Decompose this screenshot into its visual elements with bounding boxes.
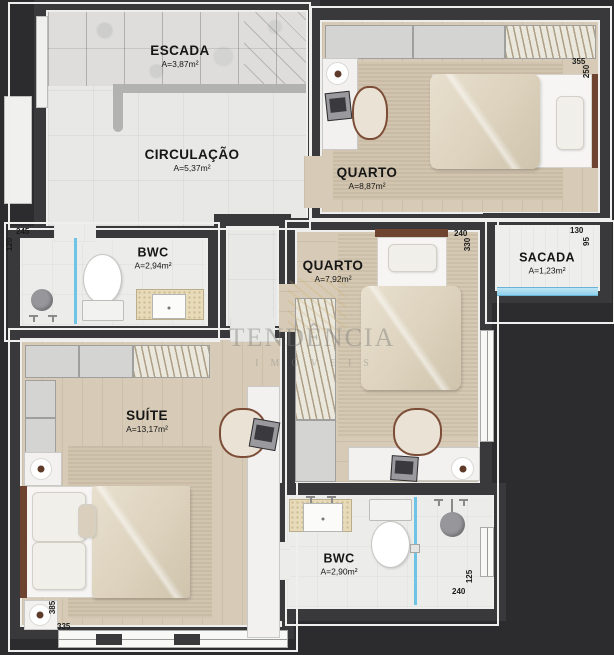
vanity-sink [303,503,343,532]
desk-chair [352,86,388,140]
room-area: A=8,87m² [337,181,398,191]
room-area: A=1,23m² [519,265,575,275]
faucet-icon [459,499,468,501]
balcony-glass-rail [497,287,598,296]
laptop-icon [390,455,419,482]
door-suite [230,318,275,342]
wardrobe-cabinet [79,345,133,378]
room-area: A=2,94m² [134,260,171,270]
faucet-icon [48,315,57,317]
bed-headboard [592,74,598,168]
room-area: A=7,92m² [303,274,364,284]
window-quarto-mid [480,330,494,442]
room-name: CIRCULAÇÃO [145,147,240,163]
room-label-quarto-top: QUARTO A=8,87m² [337,165,398,191]
wardrobe-cabinet [325,25,413,59]
vanity-sink [152,294,186,319]
shower-divider-top [74,238,77,324]
laptop-icon [249,418,281,451]
wardrobe-cabinet [25,418,56,454]
shower-door-handle [410,544,420,553]
bed-pillow [388,244,437,272]
exterior-ledge-left [4,96,32,204]
bed-duvet [92,486,190,598]
room-name: SUÍTE [126,408,168,424]
dim-bwc-bottom-height: 125 [465,570,474,583]
wardrobe-cabinet [25,345,79,378]
shower-head-icon [440,512,465,537]
room-name: BWC [134,245,171,260]
stair-landing-edge [113,84,306,93]
laptop-icon [325,91,353,121]
room-label-circulacao: CIRCULAÇÃO A=5,37m² [145,147,240,173]
wardrobe-cabinet [25,380,56,418]
dim-suite-width: 335 [57,622,70,631]
exterior-ledge-stairs [36,16,48,108]
wardrobe-cabinet [295,420,336,482]
room-area: A=2,90m² [320,566,357,576]
shower-arm [451,499,453,512]
bed-pillow [32,542,86,590]
dim-suite-height: 385 [48,601,57,614]
faucet-icon [29,315,38,317]
room-corridor [228,228,277,325]
window-pier-2 [174,634,200,645]
toilet-bowl [83,254,122,304]
dim-bwc-bottom-width: 240 [452,587,465,596]
lamp-icon [31,459,51,479]
bed-duvet [361,286,461,390]
dim-bwc-top-width: 245 [16,227,29,236]
lamp-icon [327,63,348,84]
stair-landing-edge-leg [113,84,123,132]
shower-head-icon [31,289,53,311]
dim-quarto-mid-height: 330 [463,238,472,251]
desk-chair [393,408,442,456]
room-name: ESCADA [150,43,209,59]
wardrobe-cabinet [413,25,505,59]
wardrobe-hanging [505,25,596,59]
room-label-bwc-top: BWC A=2,94m² [134,245,171,270]
room-name: QUARTO [337,165,398,181]
bed-pillow [556,96,584,150]
room-name: SACADA [519,250,575,265]
wardrobe-hanging [295,298,336,420]
room-label-sacada: SACADA A=1,23m² [519,250,575,275]
faucet-icon [327,496,336,498]
bed-duvet [430,74,540,169]
faucet-icon [306,496,315,498]
faucet-icon [434,499,443,501]
dim-quarto-top-height: 250 [582,65,591,78]
room-label-bwc-bottom: BWC A=2,90m² [320,551,357,576]
bed-pillow [78,504,96,538]
dim-bwc-top-height: 120 [5,238,14,251]
window-pier-1 [96,634,122,645]
room-area: A=13,17m² [126,424,168,434]
lamp-icon [452,458,473,479]
bed-headboard [375,229,448,237]
dim-sacada-height: 95 [582,237,591,246]
floor-plan: ESCADA A=3,87m² CIRCULAÇÃO A=5,37m² BWC … [0,0,614,655]
room-label-quarto-mid: QUARTO A=7,92m² [303,258,364,284]
dim-quarto-mid-width: 240 [454,229,467,238]
room-name: BWC [320,551,357,566]
room-label-suite: SUÍTE A=13,17m² [126,408,168,434]
toilet-tank [82,300,124,321]
room-area: A=5,37m² [145,163,240,173]
window-bwc-bottom [480,527,494,577]
room-name: QUARTO [303,258,364,274]
room-area: A=3,87m² [150,59,209,69]
wardrobe-hanging [133,345,210,378]
door-quarto-top [304,156,324,208]
toilet-bowl [371,521,410,568]
bed-headboard [20,486,27,598]
lamp-icon [30,605,50,625]
room-label-escada: ESCADA A=3,87m² [150,43,209,69]
toilet-tank [369,499,412,521]
stair-diagonal [244,12,306,86]
dim-sacada-width: 130 [570,226,583,235]
